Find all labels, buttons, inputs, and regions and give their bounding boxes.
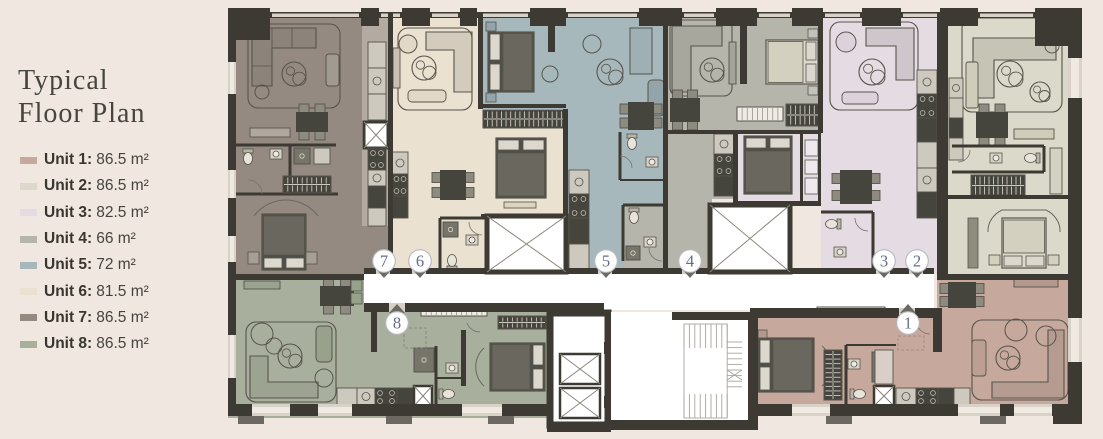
svg-text:8: 8: [393, 314, 401, 333]
svg-text:2: 2: [913, 252, 921, 271]
svg-text:1: 1: [904, 314, 912, 333]
svg-text:5: 5: [602, 252, 610, 271]
svg-text:7: 7: [380, 252, 388, 271]
svg-text:3: 3: [880, 252, 888, 271]
svg-text:6: 6: [416, 252, 424, 271]
svg-text:4: 4: [686, 252, 694, 271]
